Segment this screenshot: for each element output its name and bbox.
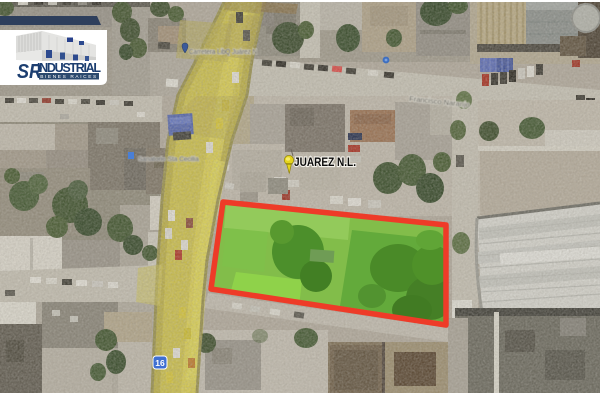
svg-text:JUAREZ N.L.: JUAREZ N.L. — [294, 155, 356, 169]
svg-text:BIENES RAICES: BIENES RAICES — [40, 74, 98, 80]
svg-text:Carretera LibQ Juárez N: Carretera LibQ Juárez N — [189, 47, 257, 56]
svg-text:INDUSTRIAL: INDUSTRIAL — [37, 61, 101, 75]
svg-text:16: 16 — [155, 358, 165, 368]
svg-text:Sanatorio Sta Cecilia: Sanatorio Sta Cecilia — [138, 156, 199, 163]
